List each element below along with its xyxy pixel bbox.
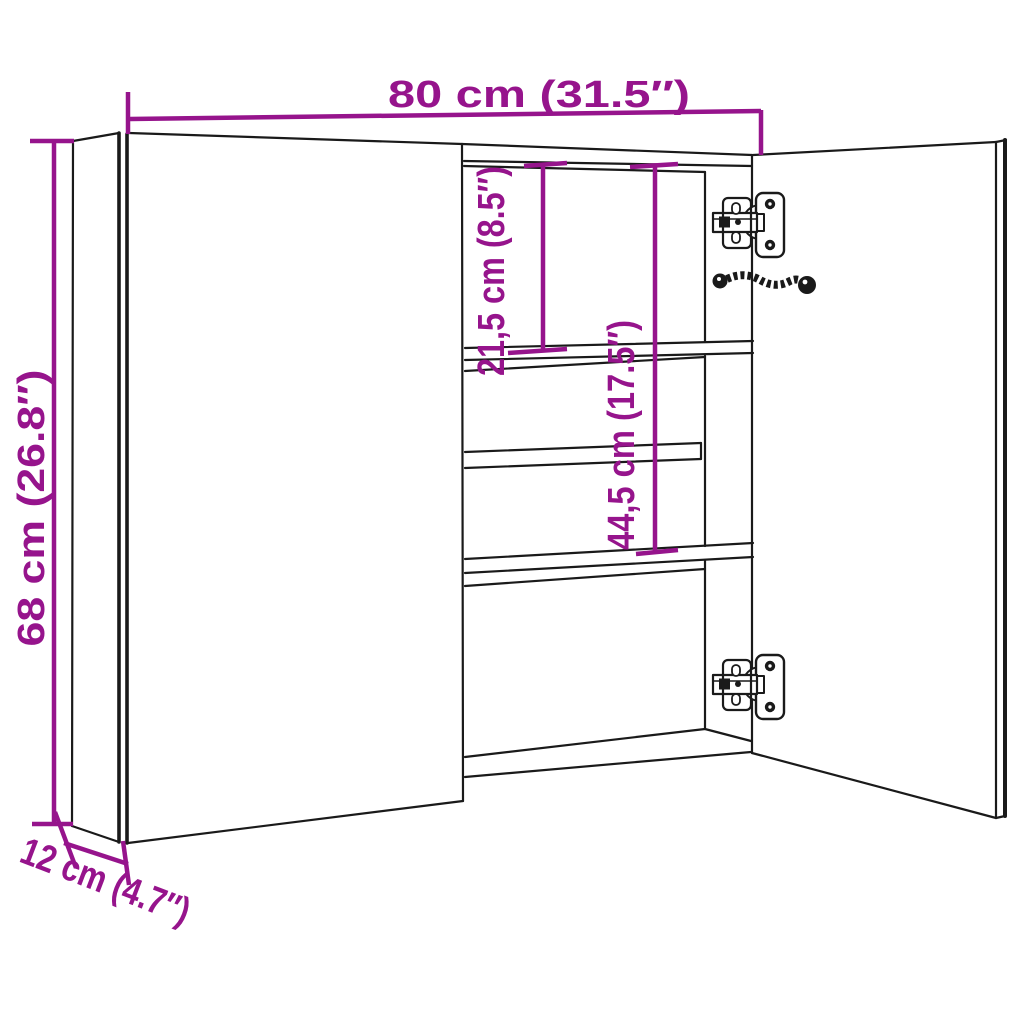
cabinet-dimension-diagram: 80 cm (31.5″) 68 cm (26.8″) 12 cm (4.7″)… bbox=[0, 0, 1024, 1024]
diagram-stage: 80 cm (31.5″) 68 cm (26.8″) 12 cm (4.7″)… bbox=[0, 0, 1024, 1024]
middle-shelf-dimension-label: 44,5 cm (17.5″) bbox=[601, 320, 643, 550]
top-shelf-dimension-label: 21,5 cm (8.5″) bbox=[471, 166, 513, 376]
height-dimension-label: 68 cm (26.8″) bbox=[11, 370, 53, 647]
diagram-background bbox=[0, 0, 1024, 1024]
width-dimension-label: 80 cm (31.5″) bbox=[388, 74, 690, 116]
